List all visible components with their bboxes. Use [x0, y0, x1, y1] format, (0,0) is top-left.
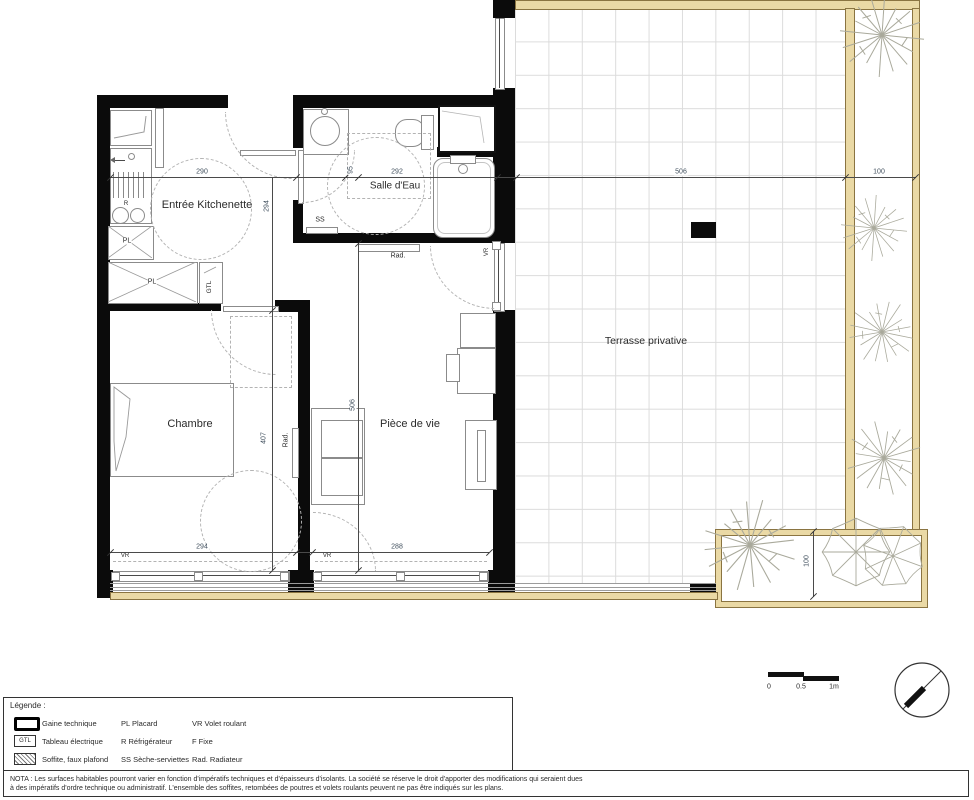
drainboard-hatch [113, 172, 147, 198]
towel-radiator [306, 227, 338, 234]
dim-label: 407 [261, 431, 268, 445]
radiator-vertical [292, 428, 299, 478]
shelf-unit [460, 313, 496, 348]
window-swing-arc [313, 512, 376, 571]
radiator [358, 244, 420, 252]
room-label-entree: Entrée Kitchenette [162, 199, 253, 211]
wall-chambre-north-a [103, 303, 221, 311]
legend-text: Tableau électrique [42, 738, 103, 746]
wall-left [97, 95, 110, 598]
shutter-box [280, 572, 289, 581]
room-label-piece-de-vie: Pièce de vie [380, 418, 440, 430]
dim-label: 100 [804, 554, 811, 568]
dim-line-vertical-2 [358, 243, 359, 570]
plant-icon [700, 495, 800, 595]
legend-panel: Légende : Gaine technique PL Placard VR … [3, 697, 513, 772]
soffit-dashed-outline [230, 316, 292, 388]
north-arrow-icon [893, 661, 951, 719]
nota-panel: NOTA : Les surfaces habitables pourront … [3, 770, 969, 797]
dim-label: 506 [674, 169, 688, 176]
scale-label-0: 0 [767, 684, 771, 691]
chair [446, 354, 460, 382]
wall-right-upper [493, 88, 515, 243]
rad-tag: Rad. [391, 253, 406, 260]
legend-title: Légende : [10, 702, 46, 710]
dim-label: 506 [350, 398, 357, 412]
sofa-cushion [321, 420, 363, 458]
pl-tag: PL [123, 238, 132, 245]
sill-line [110, 583, 716, 584]
dim-tick [486, 549, 493, 556]
scale-segment [803, 676, 839, 681]
dim-line-bottom [110, 552, 489, 553]
dim-label: 294 [264, 199, 271, 213]
plant-icon [837, 0, 927, 80]
shower-head [458, 164, 468, 174]
scale-label-1m: 1m [829, 684, 839, 691]
terrace-door-glass-line [498, 243, 499, 310]
dim-line-vertical-1 [272, 177, 273, 570]
room-label-salle-eau: Salle d'Eau [370, 181, 420, 192]
hob-burner [130, 208, 145, 223]
legend-text: R Réfrigérateur [121, 738, 172, 746]
legend-text: PL Placard [121, 720, 157, 728]
appliance-detail [110, 110, 150, 144]
desk [457, 348, 496, 394]
shower-mixer [450, 155, 476, 164]
fridge-tag: R [124, 201, 128, 207]
dim-label: 95 [348, 165, 355, 175]
gaine-icon [14, 717, 40, 731]
sill-line [110, 590, 716, 591]
scale-segment [768, 672, 804, 677]
dim-line-top [110, 177, 916, 178]
legend-text: Rad. Radiateur [192, 756, 242, 764]
room-label-chambre: Chambre [167, 418, 212, 430]
shutter-box [111, 572, 120, 581]
dim-line-planter [813, 531, 814, 597]
wall-chambre-north-b [275, 300, 310, 312]
exterior-wood-strip [110, 592, 718, 600]
gtl-icon: GTL [14, 735, 36, 747]
dim-label: 290 [195, 169, 209, 176]
legend-text: Soffite, faux plafond [42, 756, 108, 764]
plant-icon [839, 193, 909, 263]
wall-right-top [493, 0, 515, 18]
dim-label: 292 [390, 169, 404, 176]
wall-top-left [97, 95, 228, 108]
plant-icon [844, 418, 924, 498]
vr-tag: VR [121, 553, 129, 559]
nota-line-2: à des impératifs d'ordre technique ou ad… [10, 784, 962, 793]
pillow [112, 385, 136, 473]
entry-door-swing-arc [225, 112, 292, 179]
shutter-box [396, 572, 405, 581]
vr-tag: VR [484, 248, 490, 256]
shutter-box [313, 572, 322, 581]
plant-icon [847, 297, 917, 367]
legend-text: F Fixe [192, 738, 213, 746]
ss-tag: SS [315, 217, 324, 224]
duct-block-terrace [691, 222, 716, 238]
dim-label: 294 [195, 544, 209, 551]
hob-burner [112, 207, 129, 224]
scale-label-05: 0.5 [796, 684, 806, 691]
sill-line [110, 587, 716, 588]
nota-line-1: NOTA : Les surfaces habitables pourront … [10, 775, 962, 784]
pl-tag: PL [148, 279, 157, 286]
floorplan-page: VR VR VR R PL PL GTL [0, 0, 974, 800]
legend-text: Gaine technique [42, 720, 97, 728]
dim-label: 100 [872, 169, 886, 176]
washbasin [310, 116, 340, 146]
room-label-terrasse: Terrasse privative [605, 335, 687, 347]
duct-column [155, 108, 164, 168]
gtl-tag: GTL [207, 281, 214, 294]
plant-icon [858, 521, 928, 591]
wall-bath-partition-top [293, 95, 303, 148]
legend-text: SS Sèche-serviettes [121, 756, 189, 764]
dim-label: 288 [390, 544, 404, 551]
turning-circle [200, 470, 302, 572]
drain-dot [128, 153, 135, 160]
soffit-icon [14, 753, 36, 765]
rad-tag: Rad. [283, 433, 290, 448]
gtl-mark [202, 265, 218, 275]
basin-tap [321, 108, 328, 115]
cabinet-slot [477, 430, 486, 482]
fixed-window [495, 18, 505, 90]
legend-text: VR Volet roulant [192, 720, 246, 728]
sofa-cushion [321, 458, 363, 496]
shutter-box [194, 572, 203, 581]
fixed-window-glass-line [499, 18, 500, 88]
soffit-line [440, 107, 490, 147]
faucet-arrow [110, 157, 115, 163]
shutter-box [479, 572, 488, 581]
